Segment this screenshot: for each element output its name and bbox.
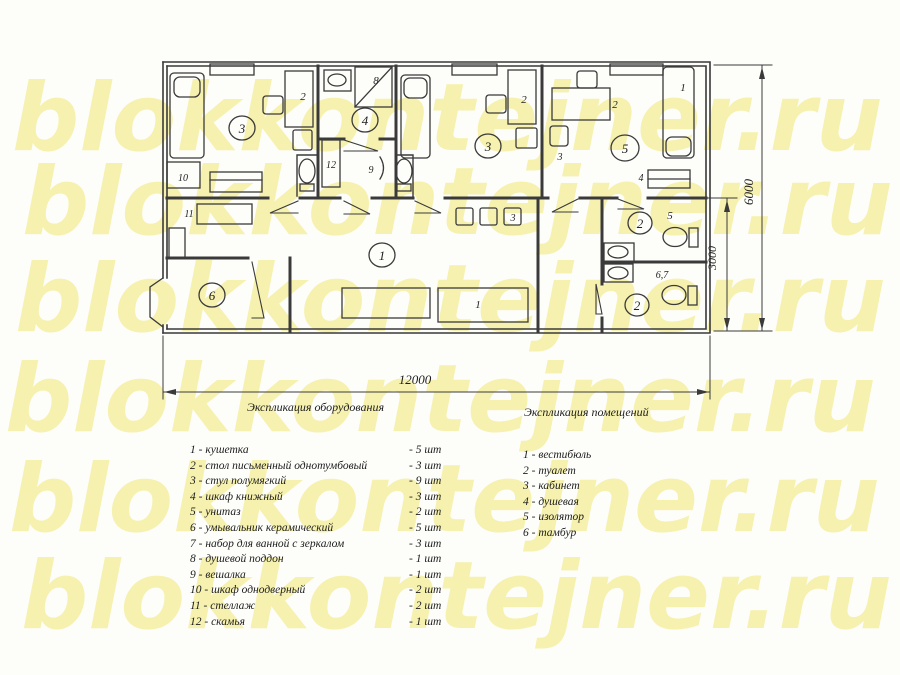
legend-item: 6 - умывальник керамический- 5 шт [190, 521, 465, 537]
legend-item-qty: - 3 шт [409, 459, 441, 475]
room-label: 2 [637, 216, 644, 231]
legend-item: 8 - душевой поддон- 1 шт [190, 552, 465, 568]
legend-item-qty: - 5 шт [409, 443, 441, 459]
furniture-label: 6,7 [656, 270, 670, 281]
furniture-label: 12 [326, 160, 336, 171]
rooms-legend-items: 1 - вестибюль2 - туалет3 - кабинет4 - ду… [523, 448, 683, 542]
legend-item-qty: - 1 шт [409, 552, 441, 568]
legend-item-name: 10 - шкаф однодверный [190, 584, 305, 596]
furniture-label: 3 [557, 152, 563, 163]
interior-walls [167, 66, 706, 331]
room-5-furniture [550, 67, 694, 188]
legend-item: 9 - вешалка- 1 шт [190, 568, 465, 584]
legend-item-name: 9 - вешалка [190, 569, 246, 581]
legend-item-name: 4 - шкаф книжный [190, 491, 283, 503]
furniture-label: 2 [612, 99, 618, 111]
dimension-labels: 12000 6000 3000 [399, 179, 756, 388]
room-label: 6 [209, 288, 216, 303]
legend-item: 3 - стул полумягкий- 9 шт [190, 474, 465, 490]
equipment-legend-items: 1 - кушетка- 5 шт2 - стол письменный одн… [190, 443, 465, 630]
legend-item: 1 - кушетка- 5 шт [190, 443, 465, 459]
dimension-height-total: 6000 [741, 179, 756, 206]
furniture-label: 8 [373, 75, 379, 87]
dimension-lines [163, 65, 772, 399]
legend-item-qty: - 9 шт [409, 474, 441, 490]
dimension-height-lower: 3000 [705, 246, 719, 271]
furniture-label: 2 [521, 94, 527, 106]
furniture-label: 4 [639, 173, 644, 184]
legend-item-qty: - 2 шт [409, 599, 441, 615]
legend-item-qty: - 3 шт [409, 490, 441, 506]
legend-item: 5 - изолятор [523, 510, 683, 526]
vestibule-furniture [169, 204, 528, 322]
room-label: 1 [379, 248, 386, 263]
legend-item: 11 - стеллаж- 2 шт [190, 599, 465, 615]
legend-item-name: 2 - стол письменный однотумбовый [190, 460, 367, 472]
legend-item-qty: - 2 шт [409, 583, 441, 599]
room-label: 5 [622, 141, 629, 156]
legend-item: 4 - шкаф книжный- 3 шт [190, 490, 465, 506]
legend-item-name: 12 - скамья [190, 616, 245, 628]
furniture-label: 9 [369, 165, 374, 176]
room-label: 3 [484, 139, 492, 154]
legend-item-name: 1 - кушетка [190, 444, 249, 456]
room-label: 4 [362, 113, 369, 128]
legend-item: 3 - кабинет [523, 479, 683, 495]
legend-item-name: 11 - стеллаж [190, 600, 255, 612]
legend-item: 1 - вестибюль [523, 448, 683, 464]
furniture-label: 3 [510, 213, 516, 224]
legend-item-name: 7 - набор для ванной с зеркалом [190, 538, 344, 550]
legend-item: 2 - стол письменный однотумбовый- 3 шт [190, 459, 465, 475]
furniture-label: 1 [475, 299, 481, 311]
furniture-label: 2 [300, 91, 306, 103]
furniture-label: 1 [680, 82, 686, 94]
legend-item-name: 5 - унитаз [190, 506, 241, 518]
legend-item: 10 - шкаф однодверный- 2 шт [190, 583, 465, 599]
legend-item-qty: - 1 шт [409, 568, 441, 584]
legend-item: 7 - набор для ванной с зеркалом- 3 шт [190, 537, 465, 553]
furniture-label: 5 [667, 210, 673, 222]
equipment-legend-title: Экспликация оборудования [247, 400, 384, 415]
furniture-label: 11 [184, 209, 193, 220]
legend-item: 2 - туалет [523, 464, 683, 480]
room-3b-furniture [401, 70, 537, 158]
legend-item-qty: - 3 шт [409, 537, 441, 553]
legend-item: 5 - унитаз- 2 шт [190, 505, 465, 521]
room-label: 3 [238, 121, 246, 136]
legend-item-qty: - 2 шт [409, 505, 441, 521]
legend-item-qty: - 1 шт [409, 615, 441, 631]
dimension-width: 12000 [399, 372, 432, 387]
legend-item: 12 - скамья- 1 шт [190, 615, 465, 631]
door-swings [252, 140, 644, 318]
toilet-fixtures [604, 212, 698, 316]
entrance-door [150, 278, 163, 327]
legend-item: 6 - тамбур [523, 526, 683, 542]
legend-item-name: 3 - стул полумягкий [190, 475, 286, 487]
page: blokkontejner.ru blokkontejner.ru blokko… [0, 0, 900, 675]
room-label: 2 [634, 298, 641, 313]
furniture-label: 10 [178, 173, 188, 184]
legend-item-name: 8 - душевой поддон [190, 553, 284, 565]
legend-item: 4 - душевая [523, 495, 683, 511]
legend-item-qty: - 5 шт [409, 521, 441, 537]
rooms-legend-title: Экспликация помещений [524, 405, 649, 420]
legend-item-name: 6 - умывальник керамический [190, 522, 333, 534]
